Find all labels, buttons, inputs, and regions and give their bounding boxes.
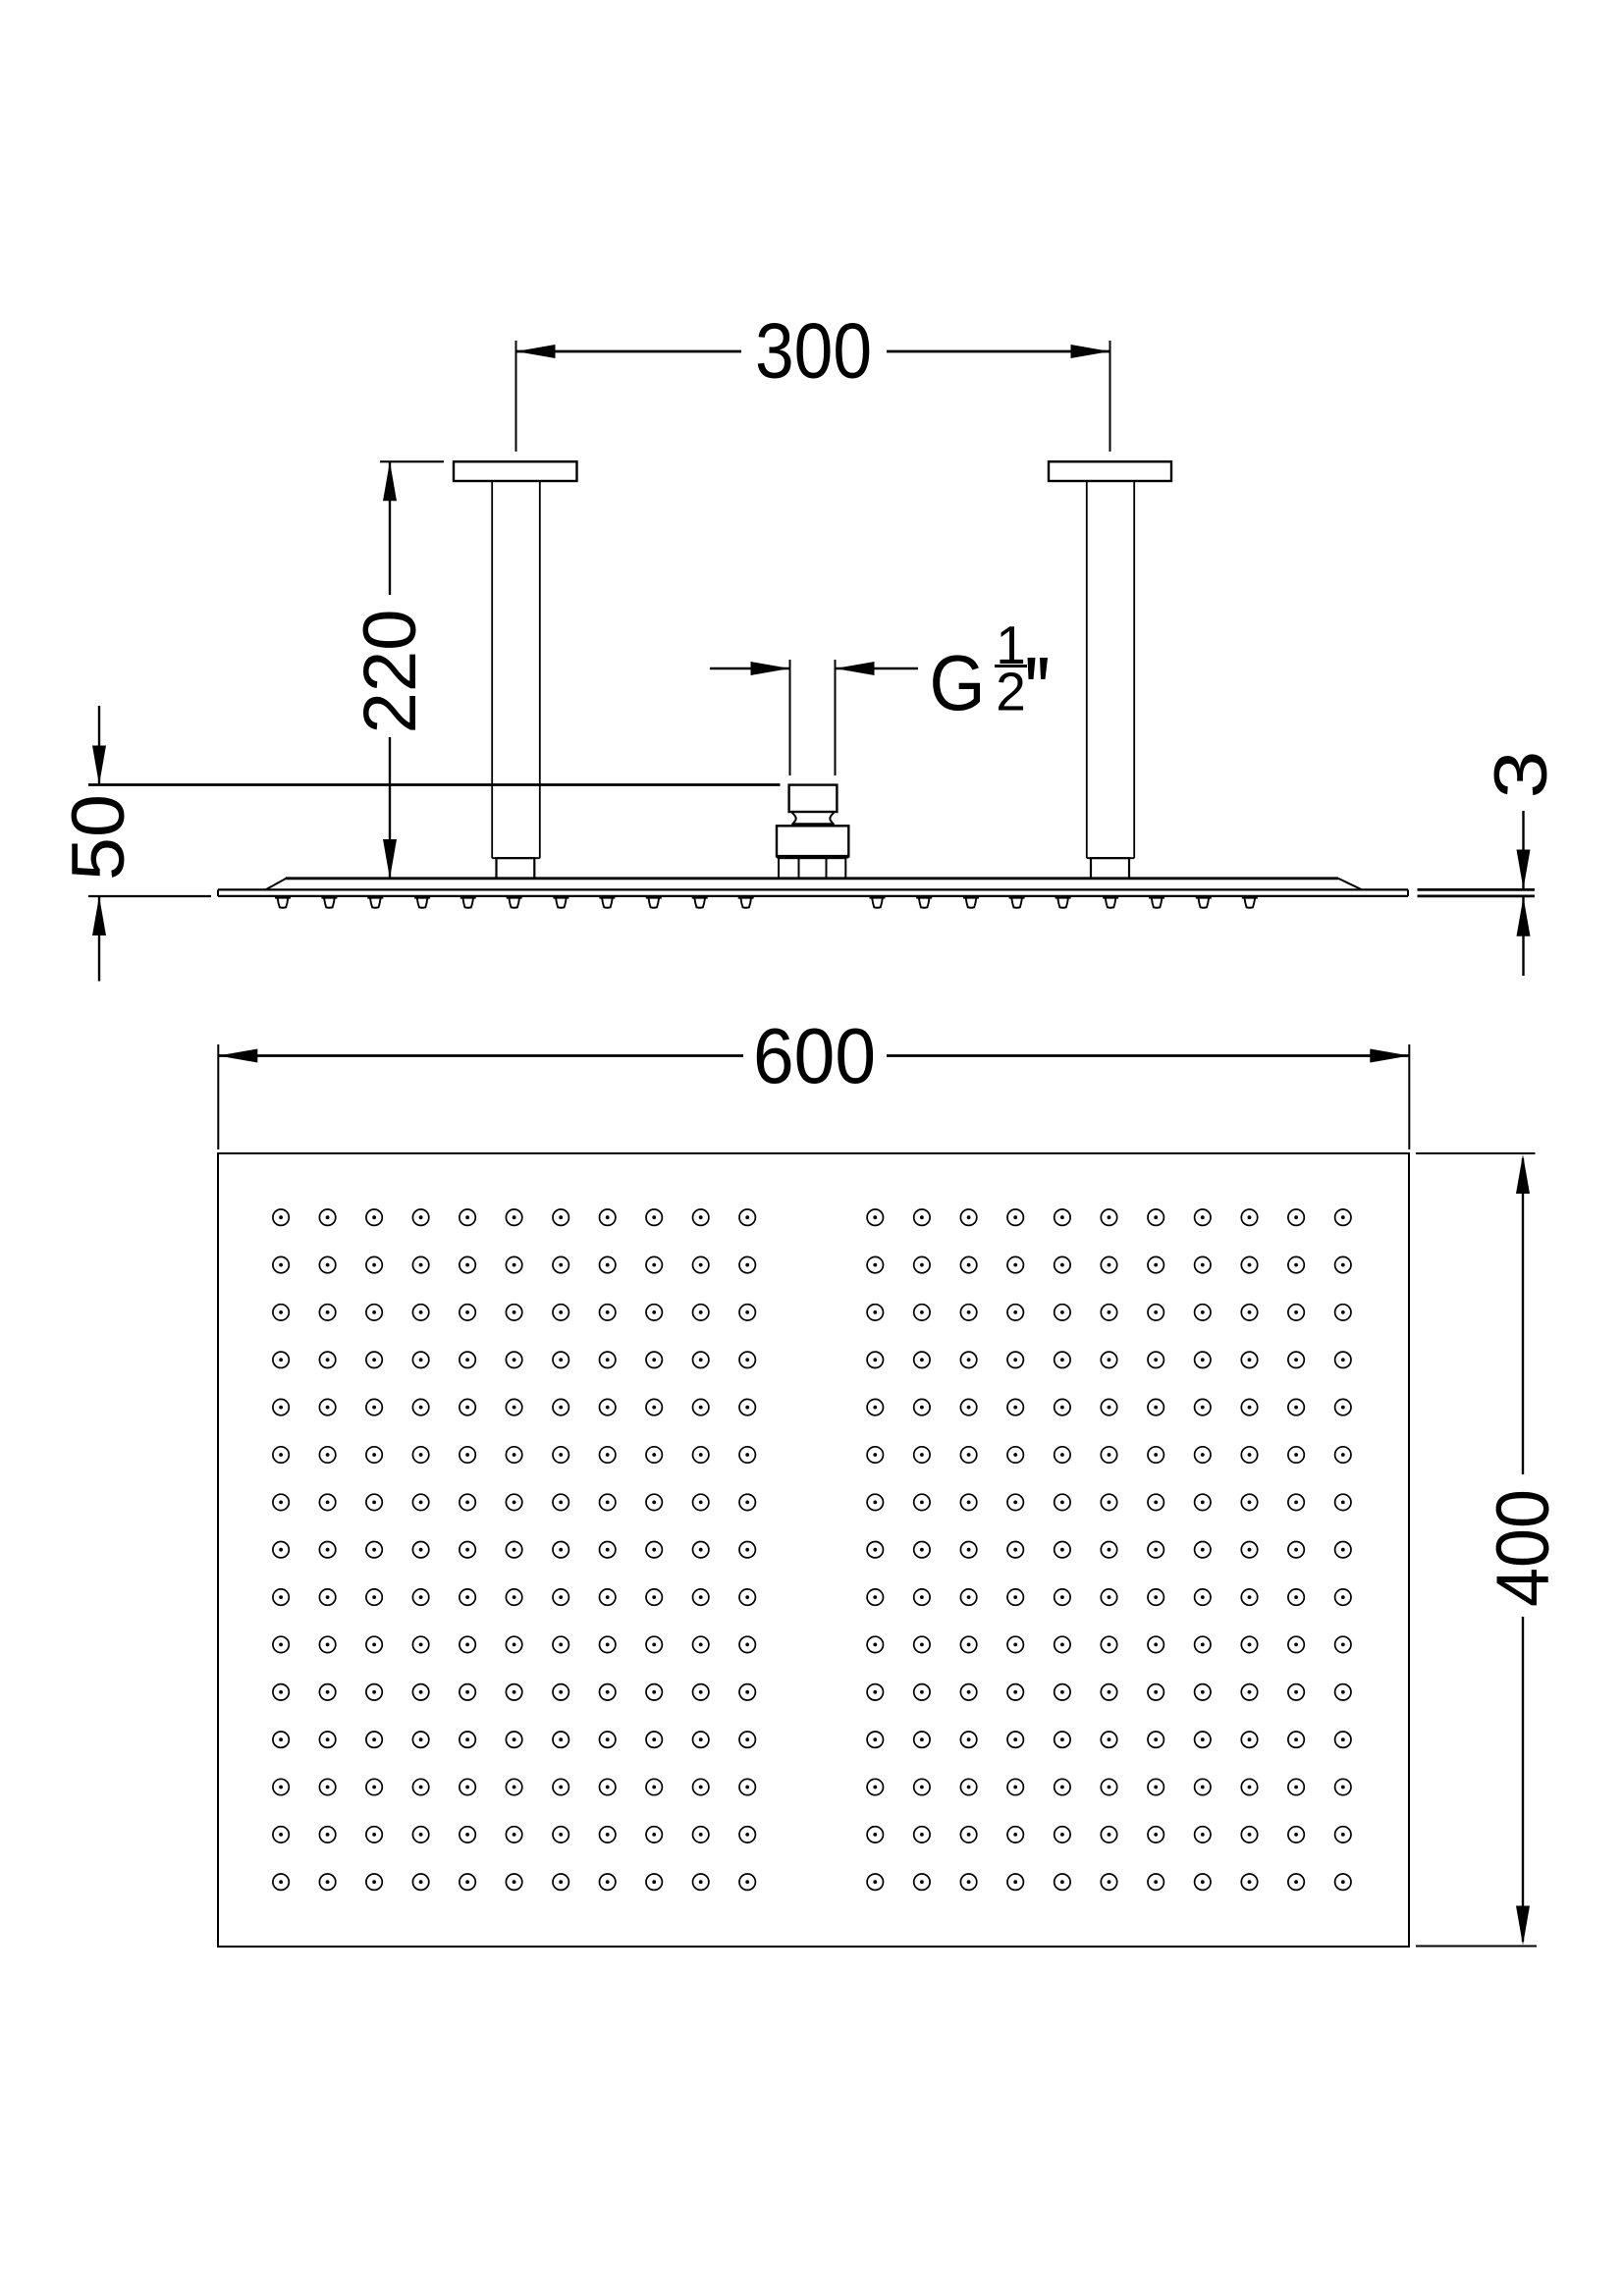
svg-text:300: 300 [755,307,872,395]
svg-text:400: 400 [1482,1489,1565,1607]
svg-text:G: G [930,639,986,726]
svg-text:3: 3 [1480,750,1563,798]
svg-text:220: 220 [349,610,432,734]
svg-text:50: 50 [57,794,140,881]
svg-text:600: 600 [753,1012,876,1099]
svg-text:2: 2 [996,662,1026,722]
